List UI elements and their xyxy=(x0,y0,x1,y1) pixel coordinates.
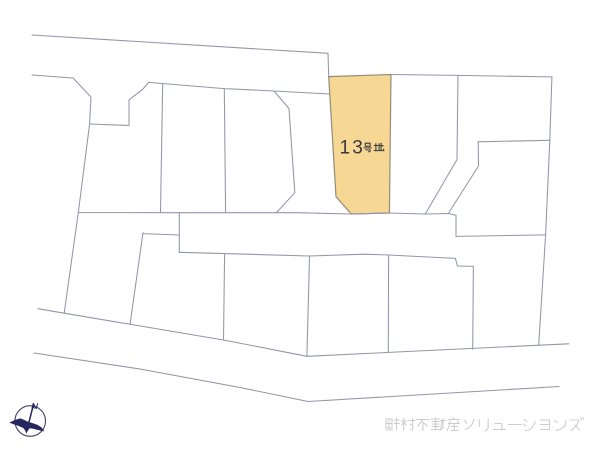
svg-text:13: 13 xyxy=(340,137,366,158)
